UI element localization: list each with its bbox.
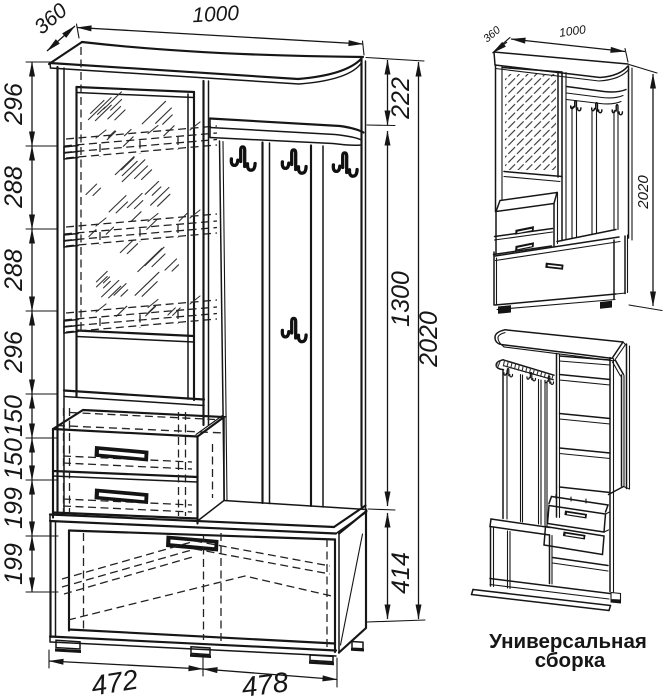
svg-text:2020: 2020 — [635, 175, 652, 210]
svg-text:288: 288 — [0, 249, 28, 292]
svg-text:296: 296 — [0, 83, 28, 126]
svg-text:сборка: сборка — [535, 649, 606, 672]
svg-text:472: 472 — [89, 664, 140, 700]
svg-text:2020: 2020 — [415, 311, 443, 368]
svg-text:199: 199 — [0, 543, 28, 585]
svg-text:150: 150 — [0, 395, 28, 437]
svg-text:1000: 1000 — [192, 2, 240, 27]
svg-text:414: 414 — [387, 552, 415, 594]
svg-text:222: 222 — [387, 77, 415, 120]
svg-text:150: 150 — [0, 438, 28, 480]
svg-text:199: 199 — [0, 487, 28, 529]
svg-text:478: 478 — [240, 666, 291, 700]
svg-text:288: 288 — [0, 166, 28, 209]
svg-text:1300: 1300 — [387, 271, 415, 327]
svg-text:296: 296 — [0, 331, 28, 374]
